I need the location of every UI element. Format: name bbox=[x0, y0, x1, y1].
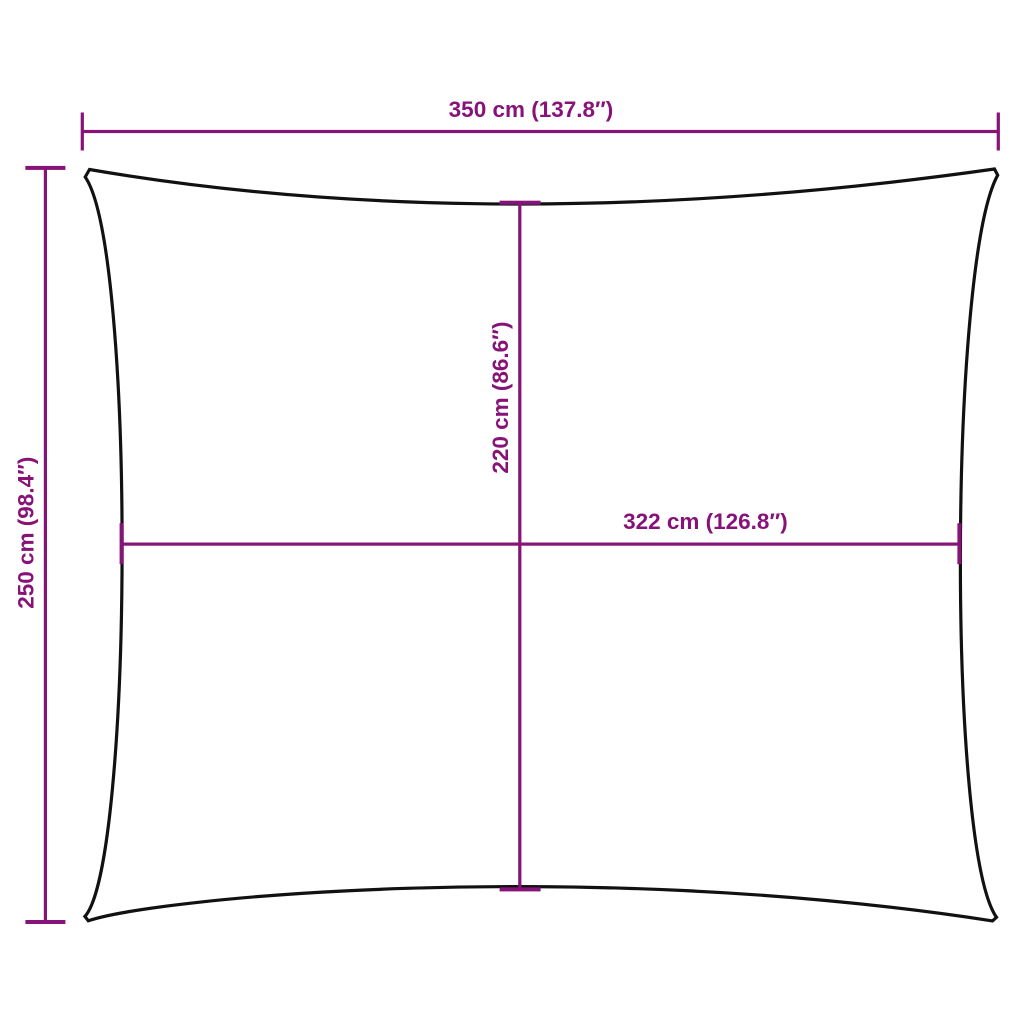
svg-text:350 cm (137.8″): 350 cm (137.8″) bbox=[449, 97, 614, 122]
svg-text:220 cm (86.6″): 220 cm (86.6″) bbox=[488, 322, 513, 474]
svg-text:250 cm (98.4″): 250 cm (98.4″) bbox=[14, 457, 39, 609]
svg-text:322 cm (126.8″): 322 cm (126.8″) bbox=[623, 509, 788, 534]
